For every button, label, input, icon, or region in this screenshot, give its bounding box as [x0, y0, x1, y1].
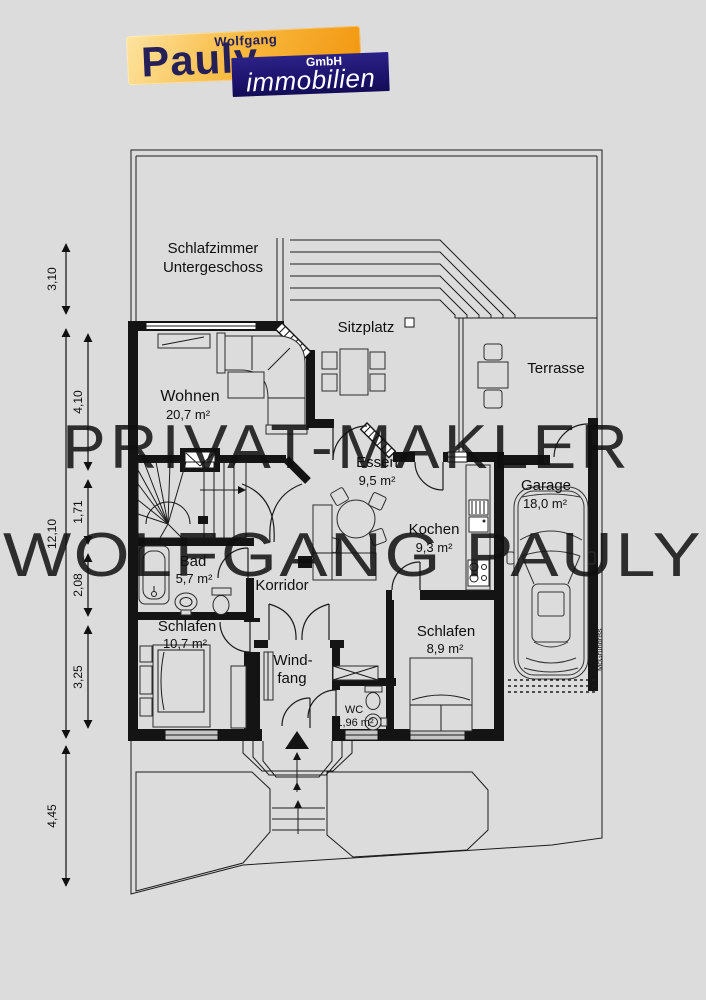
lamp-symbol: [405, 318, 414, 327]
terrace-table-set: [478, 344, 508, 408]
room-area-wc: 1,96 m²: [336, 717, 374, 729]
labels: Schlafzimmer Untergeschoss Sitzplatz Woh…: [158, 240, 604, 729]
dim-3-25: 3,25: [71, 665, 85, 689]
patio-table-set: [322, 349, 385, 395]
toilet: [212, 588, 231, 615]
room-label-kochen: Kochen: [409, 521, 460, 538]
bathroom-sink: [175, 593, 197, 615]
dim-4-45: 4,45: [45, 804, 59, 828]
window: [345, 730, 378, 740]
room-label-wohnen: Wohnen: [160, 388, 219, 405]
window: [146, 323, 256, 330]
wardrobe: [231, 666, 246, 728]
dim-1-71: 1,71: [71, 500, 85, 524]
room-label-windfang-line2: fang: [277, 670, 306, 687]
bed-double: [140, 645, 210, 727]
room-area-garage: 18,0 m²: [523, 496, 568, 511]
room-label-garage: Garage: [521, 477, 571, 494]
room-label-schlafen-left: Schlafen: [158, 618, 216, 635]
room-label-sitzplatz: Sitzplatz: [338, 319, 395, 336]
door-arc: [308, 690, 336, 718]
window: [165, 730, 218, 740]
room-label-bad: Bad: [180, 553, 207, 570]
room-area-bad: 5,7 m²: [176, 571, 214, 586]
plan-credit: McGrundriss: [595, 628, 604, 671]
floor-plan-canvas: PRIVAT-MAKLER WOLFGANG PAULY Schlafzimme…: [0, 0, 706, 1000]
room-label-windfang-line1: Wind-: [273, 652, 312, 669]
sidelight-window: [264, 652, 273, 700]
door-arc: [220, 622, 250, 652]
coffee-table: [228, 372, 264, 398]
entrance-arrow: [285, 731, 309, 749]
room-label-essen: Essen: [356, 454, 398, 471]
room-area-schlafen-left: 10,7 m²: [163, 636, 208, 651]
dresser: [333, 666, 378, 680]
room-label-wc: WC: [345, 704, 363, 716]
bed-single: [410, 658, 472, 731]
watermark-line2: WOLFGANG PAULY: [3, 521, 703, 590]
dim-2-08: 2,08: [71, 573, 85, 597]
dim-3-10: 3,10: [45, 267, 59, 291]
room-label-terrasse: Terrasse: [527, 360, 585, 377]
room-area-essen: 9,5 m²: [359, 473, 397, 488]
dim-4-10: 4,10: [71, 390, 85, 414]
watermark-line1: PRIVAT-MAKLER: [62, 413, 632, 482]
room-area-schlafen-right: 8,9 m²: [427, 641, 465, 656]
upper-floor-note-line1: Schlafzimmer: [168, 240, 259, 257]
garden-paths: [136, 772, 488, 891]
dim-12-10: 12,10: [45, 519, 59, 549]
logo-navy-plate: GmbH immobilien: [231, 52, 389, 97]
double-door-arc: [269, 604, 329, 640]
sideboard: [158, 334, 210, 348]
door-arc: [282, 698, 310, 728]
driveway-hatch: [508, 680, 598, 692]
room-area-kochen: 9,3 m²: [416, 540, 454, 555]
wc-toilet: [365, 686, 382, 710]
company-logo: Wolfgang Pauly GmbH immobilien: [0, 0, 706, 120]
stair-direction-arrow: [238, 486, 246, 494]
room-label-schlafen-right: Schlafen: [417, 623, 475, 640]
upper-floor-note-line2: Untergeschoss: [163, 259, 263, 276]
room-label-korridor: Korridor: [255, 577, 308, 594]
room-area-wohnen: 20,7 m²: [166, 407, 211, 422]
